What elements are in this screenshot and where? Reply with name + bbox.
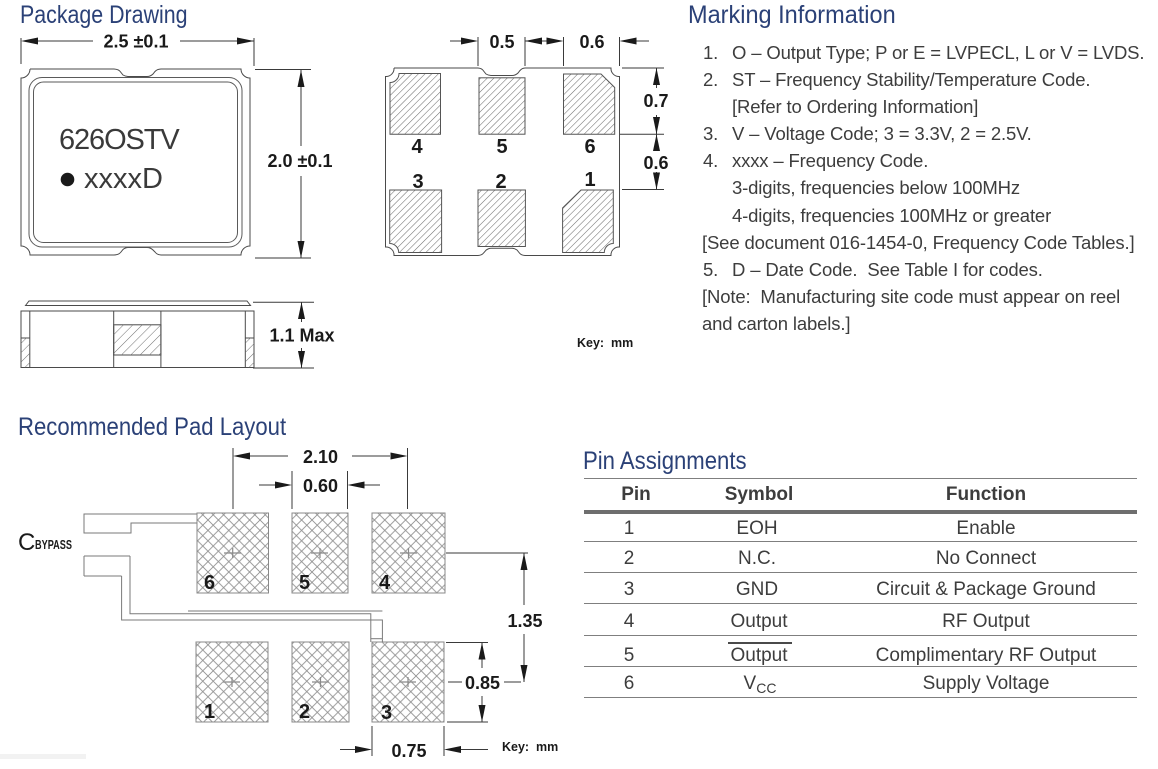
svg-text:BYPASS: BYPASS — [35, 537, 72, 552]
svg-text:3: 3 — [381, 702, 392, 724]
svg-text:0.5: 0.5 — [489, 32, 514, 52]
svg-text:0.85: 0.85 — [465, 673, 500, 693]
svg-text:5: 5 — [496, 136, 507, 158]
svg-text:2.0 ±0.1: 2.0 ±0.1 — [268, 151, 333, 171]
svg-text:2: 2 — [299, 701, 310, 723]
svg-text:2.5 ±0.1: 2.5 ±0.1 — [104, 32, 169, 52]
svg-text:0.6: 0.6 — [579, 32, 604, 52]
svg-text:626OSTV: 626OSTV — [59, 124, 180, 156]
svg-text:5: 5 — [299, 572, 310, 594]
svg-text:6: 6 — [584, 136, 595, 158]
svg-text:0.6: 0.6 — [643, 153, 668, 173]
svg-text:6: 6 — [204, 572, 215, 594]
svg-text:0.7: 0.7 — [643, 91, 668, 111]
svg-text:1: 1 — [204, 701, 215, 723]
svg-text:2: 2 — [495, 171, 506, 193]
svg-text:C: C — [18, 529, 35, 556]
svg-text:4: 4 — [411, 136, 423, 158]
svg-text:2.10: 2.10 — [303, 447, 338, 467]
svg-text:0.75: 0.75 — [391, 741, 426, 761]
svg-text:3: 3 — [412, 171, 423, 193]
svg-text:Key: mm: Key: mm — [577, 336, 633, 350]
svg-text:4: 4 — [379, 572, 391, 594]
svg-text:1.1 Max: 1.1 Max — [269, 326, 334, 346]
svg-text:1.35: 1.35 — [507, 611, 542, 631]
svg-text:1: 1 — [584, 169, 595, 191]
svg-text:0.60: 0.60 — [303, 476, 338, 496]
svg-text:Key: mm: Key: mm — [502, 740, 558, 754]
svg-text:xxxxD: xxxxD — [84, 163, 163, 195]
